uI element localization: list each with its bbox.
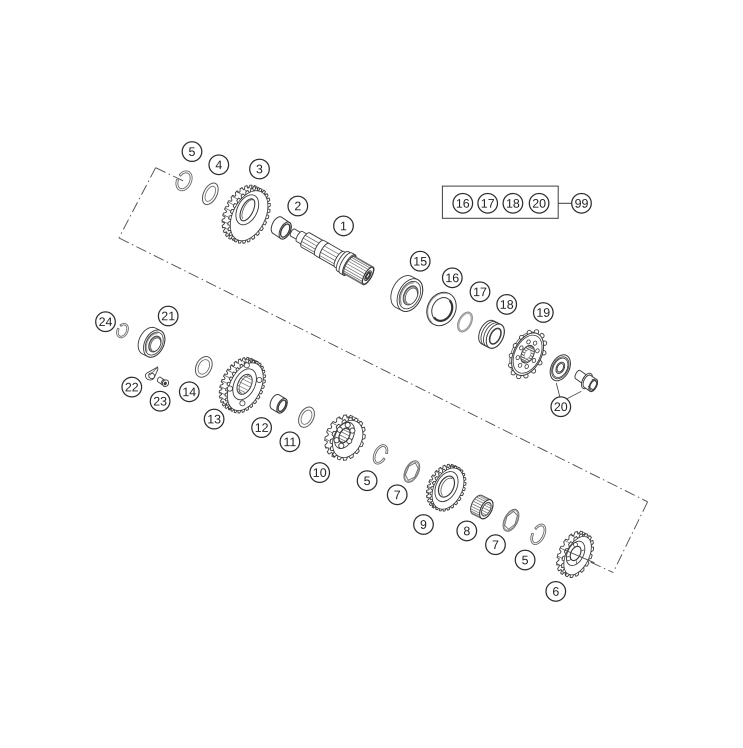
svg-text:18: 18 xyxy=(506,197,520,211)
svg-text:7: 7 xyxy=(492,538,499,552)
svg-text:21: 21 xyxy=(161,309,175,323)
svg-text:14: 14 xyxy=(182,385,196,399)
svg-text:11: 11 xyxy=(283,435,296,449)
svg-text:20: 20 xyxy=(532,197,546,211)
svg-text:6: 6 xyxy=(552,585,559,599)
svg-text:18: 18 xyxy=(500,298,514,312)
svg-text:19: 19 xyxy=(536,306,550,320)
svg-text:12: 12 xyxy=(255,421,269,435)
svg-text:4: 4 xyxy=(215,158,222,172)
svg-text:2: 2 xyxy=(294,199,301,213)
svg-text:13: 13 xyxy=(207,412,221,426)
svg-text:3: 3 xyxy=(256,162,263,176)
svg-text:20: 20 xyxy=(554,400,568,414)
svg-text:15: 15 xyxy=(413,254,427,268)
svg-text:17: 17 xyxy=(481,197,495,211)
svg-text:8: 8 xyxy=(463,524,470,538)
svg-text:1: 1 xyxy=(340,219,347,233)
svg-text:5: 5 xyxy=(522,553,529,567)
svg-text:5: 5 xyxy=(364,474,371,488)
svg-text:99: 99 xyxy=(575,197,589,211)
svg-text:17: 17 xyxy=(473,285,487,299)
svg-text:7: 7 xyxy=(394,488,401,502)
svg-text:22: 22 xyxy=(125,380,139,394)
svg-text:23: 23 xyxy=(153,394,167,408)
svg-text:16: 16 xyxy=(445,271,459,285)
svg-text:24: 24 xyxy=(99,315,113,329)
svg-text:10: 10 xyxy=(313,466,327,480)
svg-text:5: 5 xyxy=(189,145,196,159)
svg-text:16: 16 xyxy=(456,197,470,211)
svg-text:9: 9 xyxy=(420,518,427,532)
